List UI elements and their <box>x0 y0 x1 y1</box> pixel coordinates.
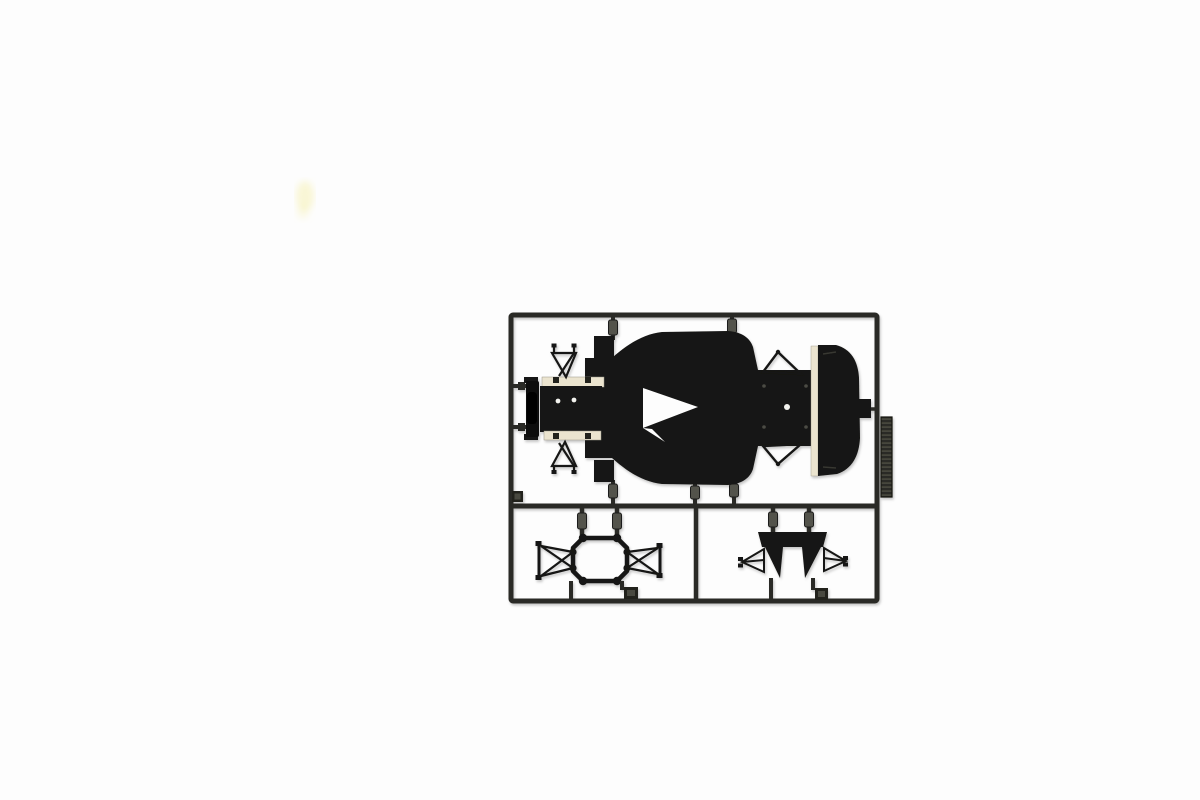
sprue-photo <box>0 0 1200 800</box>
lattice-left <box>738 549 764 572</box>
lattice-right <box>824 548 848 571</box>
lattice-right <box>627 543 663 578</box>
front-wishbone-upper <box>552 344 577 378</box>
cream-plate-upper <box>542 377 604 387</box>
sprue-canvas <box>0 0 1200 800</box>
wedge-left <box>765 547 783 578</box>
nose-box-upper <box>594 336 614 358</box>
backdrop-smudge <box>296 181 314 219</box>
wedge-right <box>802 547 821 578</box>
radiator-plate <box>881 417 892 497</box>
front-wishbone-lower <box>552 442 577 474</box>
front-suspension-assembly <box>536 508 663 599</box>
gate-tab-left <box>512 491 523 502</box>
sprue <box>511 315 892 601</box>
rear-suspension-assembly <box>738 508 848 600</box>
cross-member <box>758 532 827 547</box>
chassis-rear-hole <box>784 404 790 410</box>
gate-tab-bottom-left <box>624 587 638 599</box>
bulkhead-box <box>540 386 602 432</box>
gate-tab-bottom-right <box>815 588 828 600</box>
nose-box-lower <box>594 460 614 482</box>
suspension-ring <box>573 538 627 581</box>
rear-wishbone-lower <box>763 444 801 466</box>
front-bulkhead <box>524 377 604 440</box>
cream-plate-lower <box>544 431 601 440</box>
lattice-left <box>536 541 574 580</box>
engine-cover <box>811 345 876 476</box>
engine-cover-cream-strip <box>811 346 818 476</box>
